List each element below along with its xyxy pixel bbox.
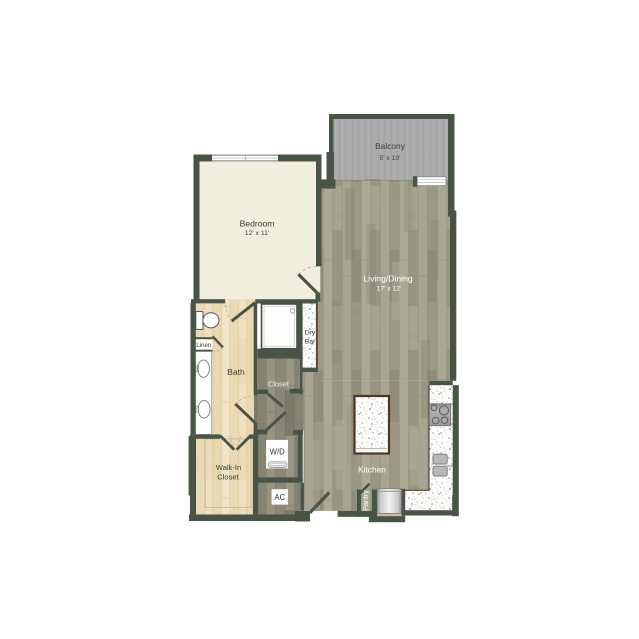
svg-text:W/D: W/D	[270, 448, 286, 457]
svg-text:5' x 10': 5' x 10'	[379, 155, 400, 162]
svg-text:Kitchen: Kitchen	[358, 464, 386, 474]
svg-text:Closet: Closet	[217, 473, 239, 482]
svg-text:Walk-In: Walk-In	[216, 463, 241, 472]
svg-text:Balcony: Balcony	[375, 141, 406, 151]
svg-text:12' x 11': 12' x 11'	[245, 230, 269, 237]
svg-text:Bath: Bath	[227, 367, 245, 377]
svg-text:Living/Dining: Living/Dining	[363, 274, 412, 284]
svg-text:Closet: Closet	[268, 380, 289, 389]
svg-text:AC: AC	[274, 493, 285, 502]
svg-text:Pantry: Pantry	[361, 490, 370, 511]
svg-text:17' x 12': 17' x 12'	[377, 286, 402, 293]
svg-text:Bar: Bar	[305, 338, 316, 345]
svg-text:Dry: Dry	[305, 330, 316, 337]
svg-text:Bedroom: Bedroom	[240, 219, 275, 229]
svg-text:Linen: Linen	[196, 342, 212, 349]
